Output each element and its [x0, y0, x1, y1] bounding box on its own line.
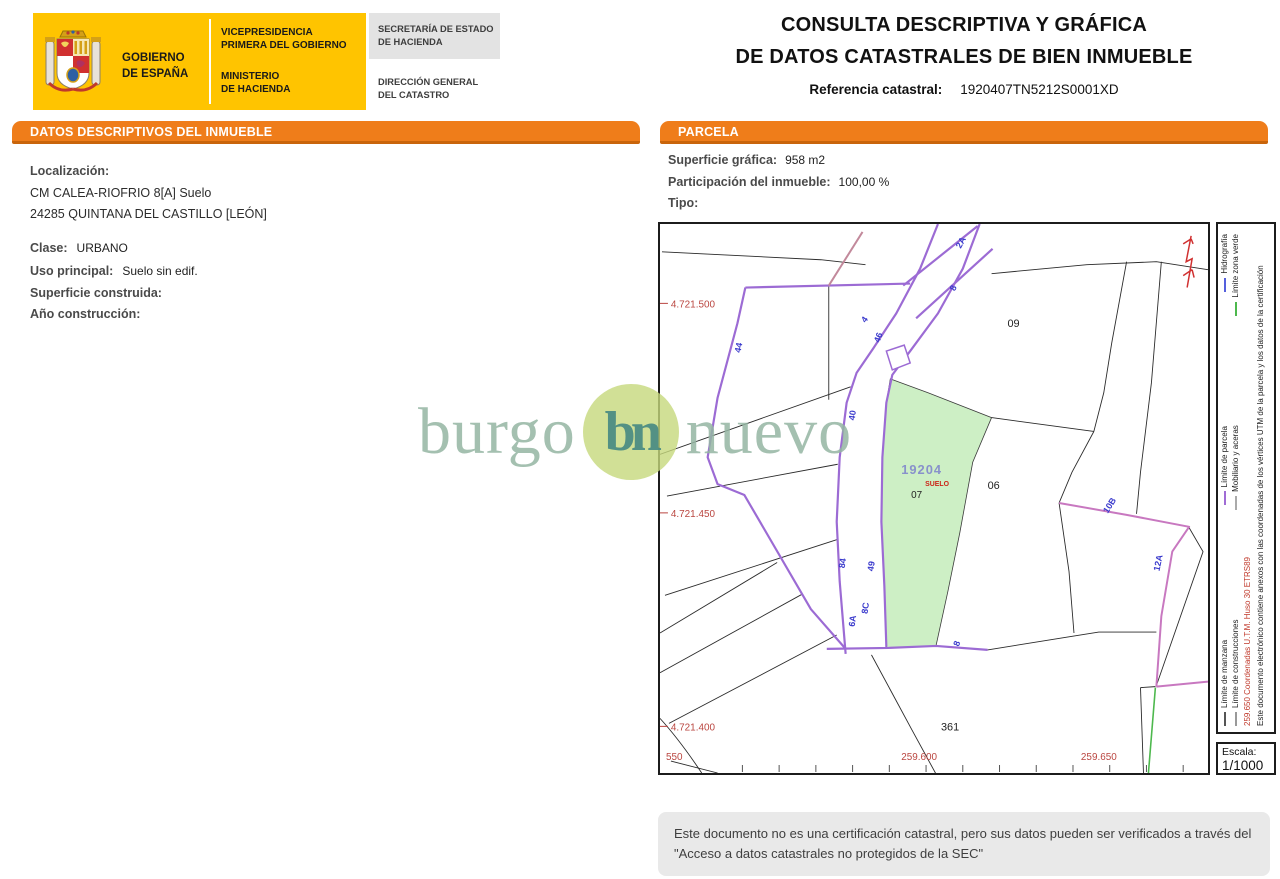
ministry-label-block: VICEPRESIDENCIA PRIMERA DEL GOBIERNO MIN…	[209, 13, 347, 110]
construcciones-line-icon	[1235, 712, 1237, 726]
address-line-1: CM CALEA-RIOFRIO 8[A] Suelo	[30, 186, 211, 200]
zona-verde-line-icon	[1235, 302, 1237, 316]
clase-value: URBANO	[77, 241, 128, 255]
ano-construccion-row: Año construcción:	[30, 307, 149, 321]
legend-item-parcela: Límite de parcela	[1220, 426, 1229, 505]
coord-y3-label: 4.721.400	[671, 722, 716, 733]
coord-x3-label: 259.650	[1081, 752, 1117, 763]
section-header-datos-descriptivos: DATOS DESCRIPTIVOS DEL INMUEBLE	[12, 121, 640, 144]
street-84-label: 84	[837, 558, 848, 569]
mobiliario-line-icon	[1235, 496, 1237, 510]
legend-electronic-note: Este documento electrónico contiene anex…	[1256, 234, 1265, 726]
header-divider	[209, 19, 211, 104]
parcel-07-label: 07	[911, 490, 923, 501]
cadastral-document-page: GOBIERNO DE ESPAÑA VICEPRESIDENCIA PRIME…	[0, 0, 1280, 879]
vicepresidencia-label: VICEPRESIDENCIA PRIMERA DEL GOBIERNO	[221, 26, 347, 52]
cadastral-map: 4.721.500 4.721.450 4.721.400 550 259.60…	[658, 222, 1210, 775]
direccion-general-catastro-label: DIRECCIÓN GENERAL DEL CATASTRO	[378, 76, 478, 101]
limite-zona-verde-line	[1148, 688, 1155, 773]
superficie-grafica-row: Superficie gráfica:958 m2	[668, 153, 825, 167]
legend-row-2: Límite de construcciones Mobiliario y ac…	[1231, 234, 1240, 726]
coord-x1-label: 550	[666, 752, 683, 763]
ministerio-label: MINISTERIO DE HACIENDA	[221, 70, 347, 96]
subject-parcel-polygon	[881, 379, 991, 648]
legend-item-zona-verde: Límite zona verde	[1231, 234, 1240, 316]
coord-y2-label: 4.721.450	[671, 509, 716, 520]
coord-x2-label: 259.600	[901, 752, 937, 763]
localizacion-label: Localización:	[30, 164, 109, 178]
title-line-2: DE DATOS CATASTRALES DE BIEN INMUEBLE	[658, 46, 1270, 69]
secretaria-estado-label: SECRETARÍA DE ESTADO DE HACIENDA	[369, 13, 500, 59]
parcel-06-label: 06	[988, 480, 1000, 492]
street-4-label: 4	[859, 315, 870, 325]
watermark-monogram: bn	[605, 400, 657, 464]
left-axis-ticks	[660, 303, 668, 726]
cadastral-reference-label: Referencia catastral:	[809, 82, 942, 97]
government-header: GOBIERNO DE ESPAÑA VICEPRESIDENCIA PRIME…	[33, 13, 366, 110]
scale-box: Escala: 1/1000	[1216, 742, 1276, 775]
title-line-1: CONSULTA DESCRIPTIVA Y GRÁFICA	[658, 14, 1270, 37]
street-12a-label: 12A	[1152, 553, 1165, 572]
footer-disclaimer: Este documento no es una certificación c…	[658, 812, 1270, 876]
legend-coordinates-note: 259.650 Coordenadas U.T.M. Huso 30 ETRS8…	[1243, 234, 1252, 726]
cadastral-reference-value: 1920407TN5212S0001XD	[960, 82, 1118, 97]
section-header-parcela: PARCELA	[660, 121, 1268, 144]
pink-diagonal-line	[829, 232, 863, 286]
cadastral-map-svg: 4.721.500 4.721.450 4.721.400 550 259.60…	[660, 224, 1208, 773]
cadastral-reference-row: Referencia catastral: 1920407TN5212S0001…	[658, 82, 1270, 97]
parcel-09-label: 09	[1007, 318, 1019, 330]
address-line-2: 24285 QUINTANA DEL CASTILLO [LEÓN]	[30, 207, 267, 221]
superficie-grafica-value: 958 m2	[785, 153, 825, 167]
participacion-value: 100,00 %	[839, 175, 890, 189]
legend-item-hidrografia: Hidrografía	[1220, 234, 1229, 292]
watermark-word-burgo: burgo	[418, 394, 576, 470]
legend-item-construcciones: Límite de construcciones	[1231, 620, 1240, 727]
subject-ref-label: 19204	[901, 462, 942, 477]
bottom-axis-ticks	[742, 765, 1183, 772]
legend-row-1: Límite de manzana Límite de parcela Hidr…	[1220, 234, 1229, 726]
document-title: CONSULTA DESCRIPTIVA Y GRÁFICA DE DATOS …	[658, 14, 1270, 97]
scale-label: Escala:	[1222, 746, 1270, 758]
gobierno-de-espana-label: GOBIERNO DE ESPAÑA	[122, 51, 188, 82]
street-2a-label: 2A	[954, 235, 968, 250]
street-49-label: 49	[866, 560, 877, 571]
legend-item-mobiliario: Mobiliario y aceras	[1231, 425, 1240, 510]
spain-coat-of-arms-icon	[41, 23, 105, 99]
government-logo-block: GOBIERNO DE ESPAÑA	[33, 13, 209, 110]
tipo-row: Tipo:	[668, 196, 706, 210]
scale-value: 1/1000	[1222, 758, 1270, 773]
participacion-row: Participación del inmueble:100,00 %	[668, 175, 889, 189]
uso-principal-row: Uso principal:Suelo sin edif.	[30, 264, 198, 278]
superficie-construida-row: Superficie construida:	[30, 286, 171, 300]
limite-pink-lines	[1059, 503, 1208, 687]
legend-item-manzana: Límite de manzana	[1220, 640, 1229, 726]
manzana-line-icon	[1224, 712, 1226, 726]
small-building-polygon	[886, 345, 910, 370]
parcela-line-icon	[1224, 491, 1226, 505]
clase-row: Clase:URBANO	[30, 241, 128, 255]
street-40-label: 40	[847, 410, 858, 421]
coord-y1-label: 4.721.500	[671, 299, 716, 310]
parcel-361-label: 361	[941, 721, 959, 733]
street-8c-label: 8C	[860, 601, 872, 614]
street-44-label: 44	[733, 342, 745, 354]
hidrografia-line-icon	[1224, 278, 1226, 292]
street-6a-label: 6A	[847, 614, 859, 627]
subject-use-label: SUELO	[925, 481, 950, 488]
uso-principal-value: Suelo sin edif.	[122, 264, 197, 278]
hydrography-arrow-icon	[1183, 236, 1194, 288]
